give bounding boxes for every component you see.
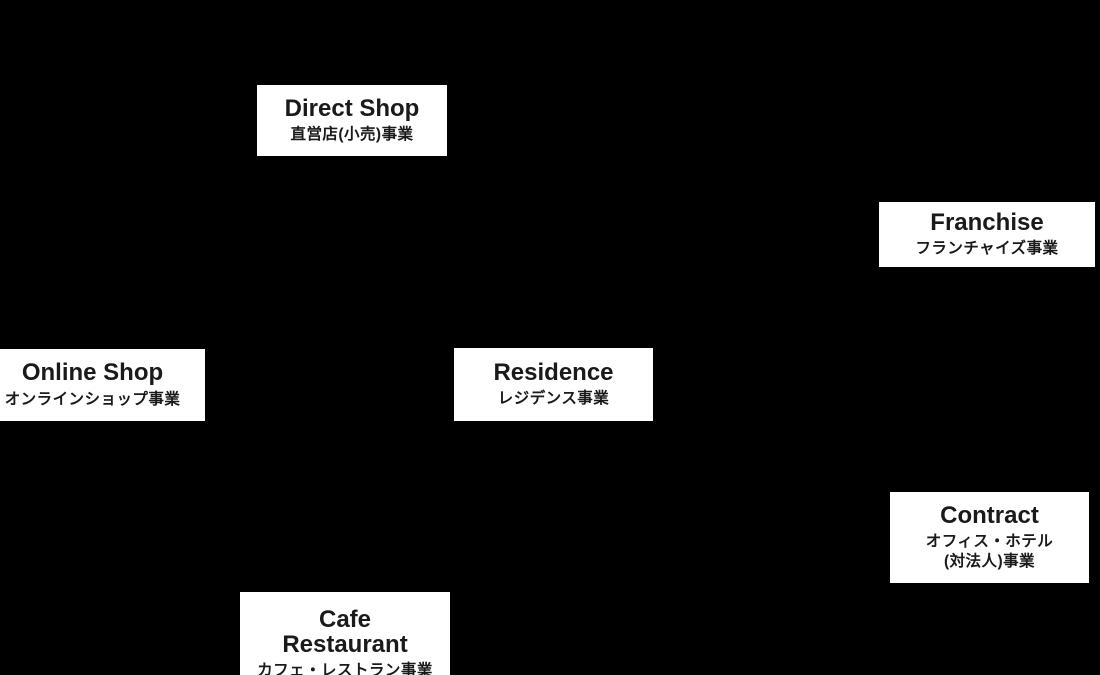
- tile-online-shop-subtitle: オンラインショップ事業: [5, 390, 181, 410]
- tile-cafe-restaurant-title: Cafe Restaurant: [282, 607, 407, 657]
- tile-franchise[interactable]: Franchise フランチャイズ事業: [879, 202, 1095, 267]
- tile-contract-title: Contract: [940, 503, 1039, 528]
- tile-franchise-subtitle: フランチャイズ事業: [915, 239, 1058, 259]
- business-segments-map: Direct Shop 直営店(小売)事業 Franchise フランチャイズ事…: [0, 0, 1100, 675]
- tile-residence[interactable]: Residence レジデンス事業: [454, 348, 653, 421]
- tile-direct-shop-title: Direct Shop: [285, 96, 420, 121]
- tile-franchise-title: Franchise: [930, 210, 1043, 235]
- tile-direct-shop[interactable]: Direct Shop 直営店(小売)事業: [257, 85, 447, 156]
- tile-online-shop-title: Online Shop: [22, 360, 163, 385]
- tile-residence-subtitle: レジデンス事業: [498, 389, 609, 409]
- tile-online-shop[interactable]: Online Shop オンラインショップ事業: [0, 349, 205, 421]
- tile-cafe-restaurant[interactable]: Cafe Restaurant カフェ・レストラン事業: [240, 592, 450, 675]
- tile-contract[interactable]: Contract オフィス・ホテル (対法人)事業: [890, 492, 1089, 583]
- tile-residence-title: Residence: [493, 360, 613, 385]
- tile-cafe-restaurant-subtitle: カフェ・レストラン事業: [257, 661, 433, 675]
- tile-direct-shop-subtitle: 直営店(小売)事業: [290, 125, 413, 145]
- tile-contract-subtitle: オフィス・ホテル (対法人)事業: [926, 532, 1053, 572]
